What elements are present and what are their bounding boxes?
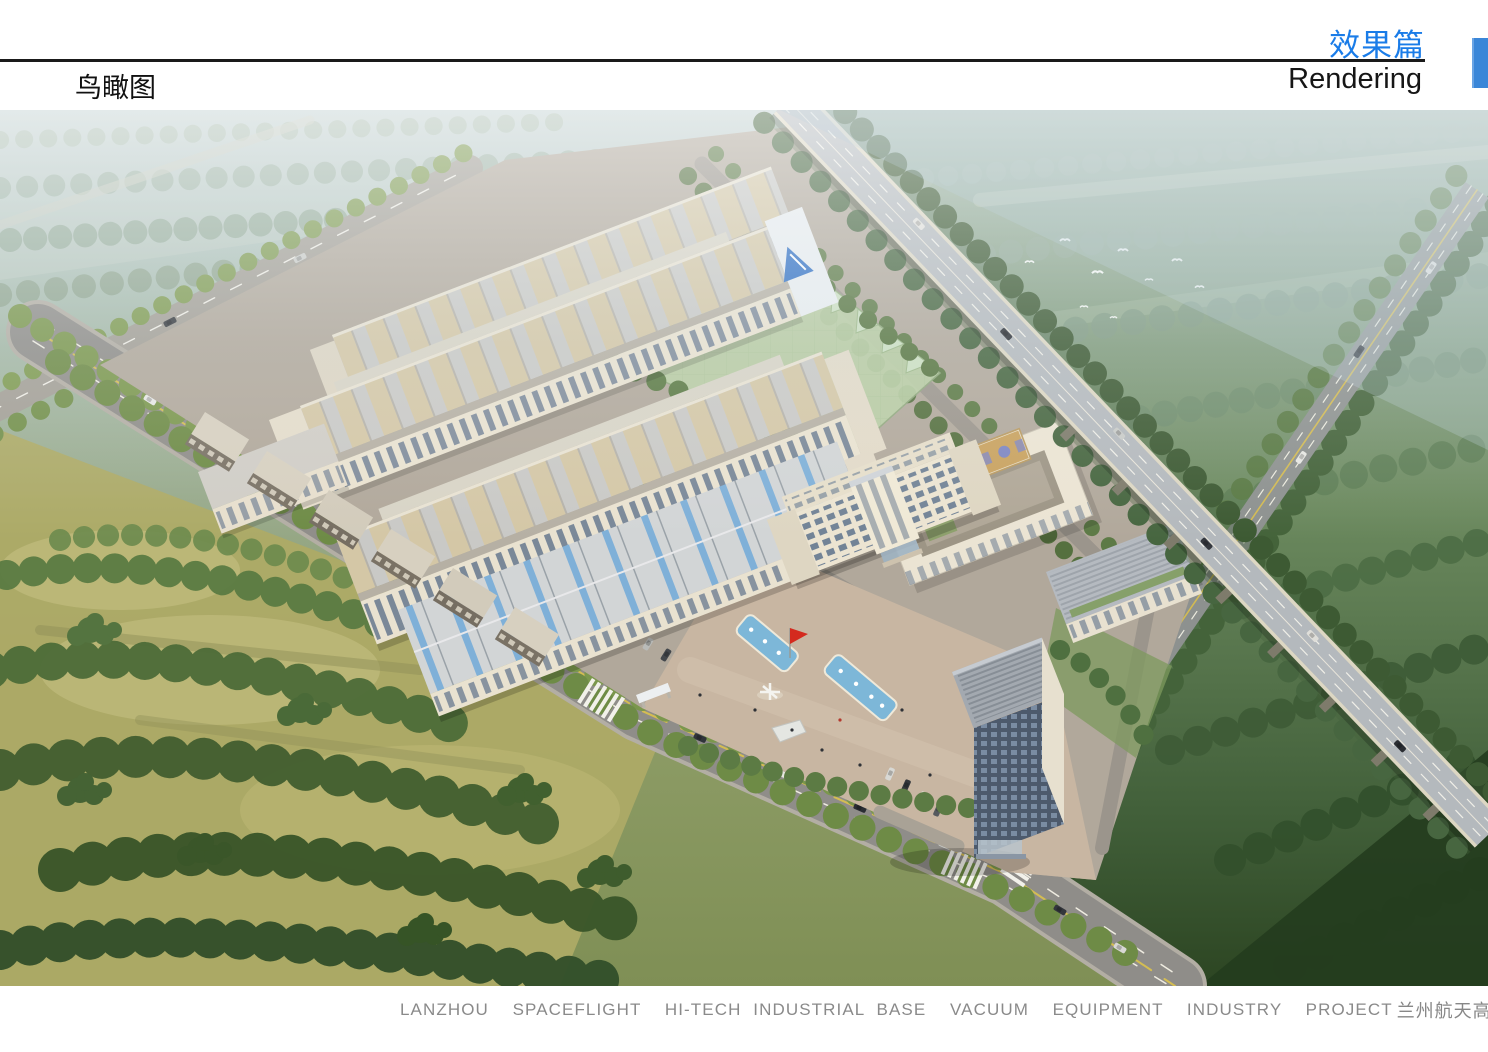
page-title: 鸟瞰图: [75, 66, 156, 105]
page-footer: LANZHOU SPACEFLIGHT HI-TECH INDUSTRIAL B…: [0, 986, 1488, 1052]
section-title-english: Rendering: [1288, 63, 1422, 96]
aerial-rendering-image: [0, 110, 1488, 986]
rendering-image-area: [0, 110, 1488, 986]
header-divider-line: [0, 59, 1425, 62]
project-caption: LANZHOU SPACEFLIGHT HI-TECH INDUSTRIAL B…: [400, 997, 1488, 1023]
page-header: 效果篇 Rendering 鸟瞰图: [0, 0, 1488, 110]
project-caption-chinese: 兰州航天高新产业基地真空装备产业园项目: [1397, 997, 1488, 1023]
haze-overlay: [0, 110, 1488, 540]
page-side-tab-marker: [1472, 38, 1488, 88]
project-caption-english: LANZHOU SPACEFLIGHT HI-TECH INDUSTRIAL B…: [400, 1000, 1393, 1020]
